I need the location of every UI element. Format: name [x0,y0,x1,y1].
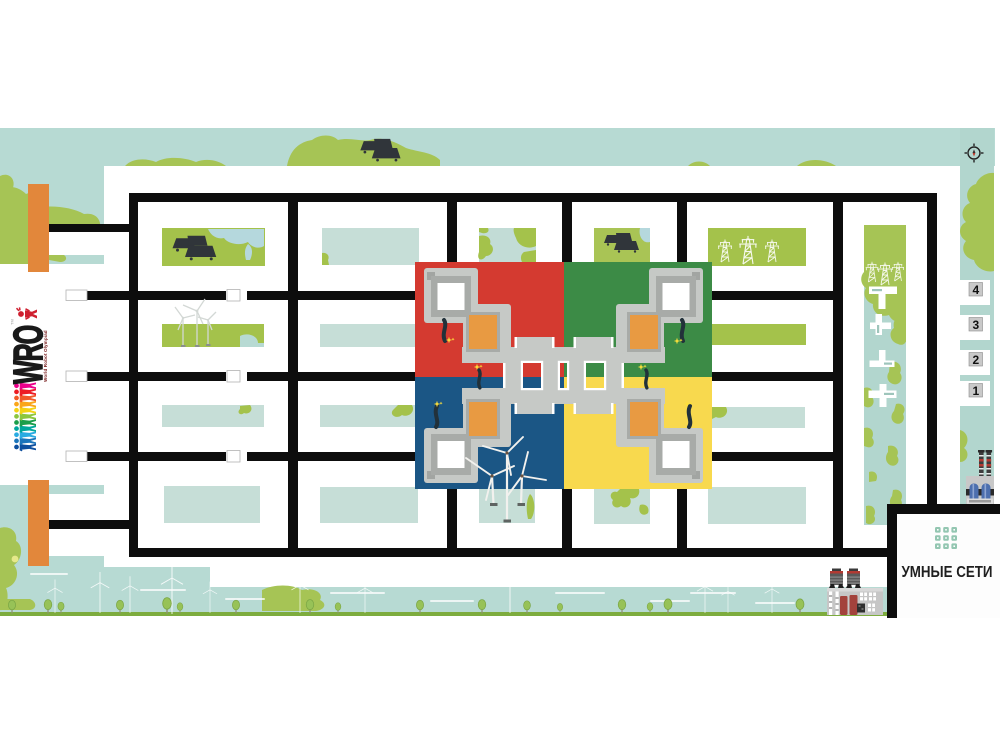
svg-text:1: 1 [972,384,979,398]
svg-text:World Robot Olympiad: World Robot Olympiad [43,330,48,382]
svg-text:3: 3 [972,318,979,332]
svg-text:TM: TM [10,319,15,325]
svg-text:2: 2 [972,353,979,367]
svg-text:УМНЫЕ СЕТИ: УМНЫЕ СЕТИ [902,564,993,581]
svg-text:4: 4 [972,283,979,297]
